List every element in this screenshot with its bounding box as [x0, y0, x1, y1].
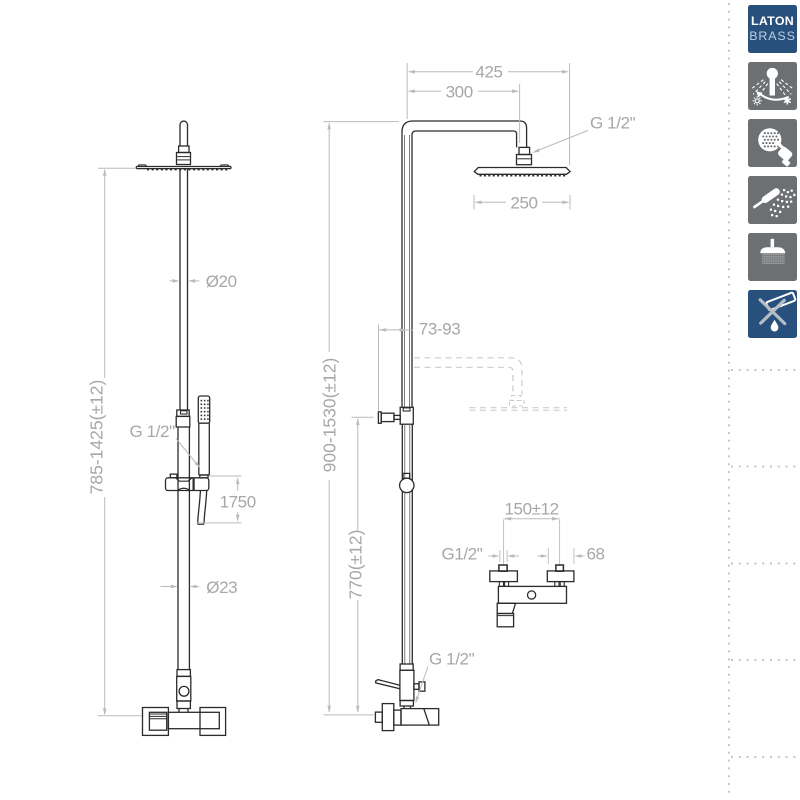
- svg-text:LATON: LATON: [751, 14, 794, 28]
- svg-text:68: 68: [587, 544, 605, 563]
- svg-text:425: 425: [475, 63, 502, 82]
- svg-text:785-1425(±12): 785-1425(±12): [87, 380, 107, 495]
- svg-text:1750: 1750: [220, 493, 256, 512]
- svg-text:300: 300: [446, 83, 473, 102]
- svg-text:150±12: 150±12: [504, 500, 558, 519]
- svg-text:G 1/2": G 1/2": [590, 113, 636, 132]
- svg-text:Ø20: Ø20: [206, 272, 237, 291]
- svg-text:900-1530(±12): 900-1530(±12): [319, 358, 339, 473]
- svg-text:G 1/2": G 1/2": [130, 422, 176, 441]
- svg-text:BRASS: BRASS: [749, 29, 796, 43]
- svg-text:770(±12): 770(±12): [345, 530, 365, 600]
- svg-text:73-93: 73-93: [419, 320, 460, 339]
- svg-text:Ø23: Ø23: [206, 578, 237, 597]
- svg-text:G1/2": G1/2": [442, 545, 483, 564]
- svg-text:250: 250: [510, 194, 537, 213]
- svg-text:G 1/2": G 1/2": [429, 650, 475, 669]
